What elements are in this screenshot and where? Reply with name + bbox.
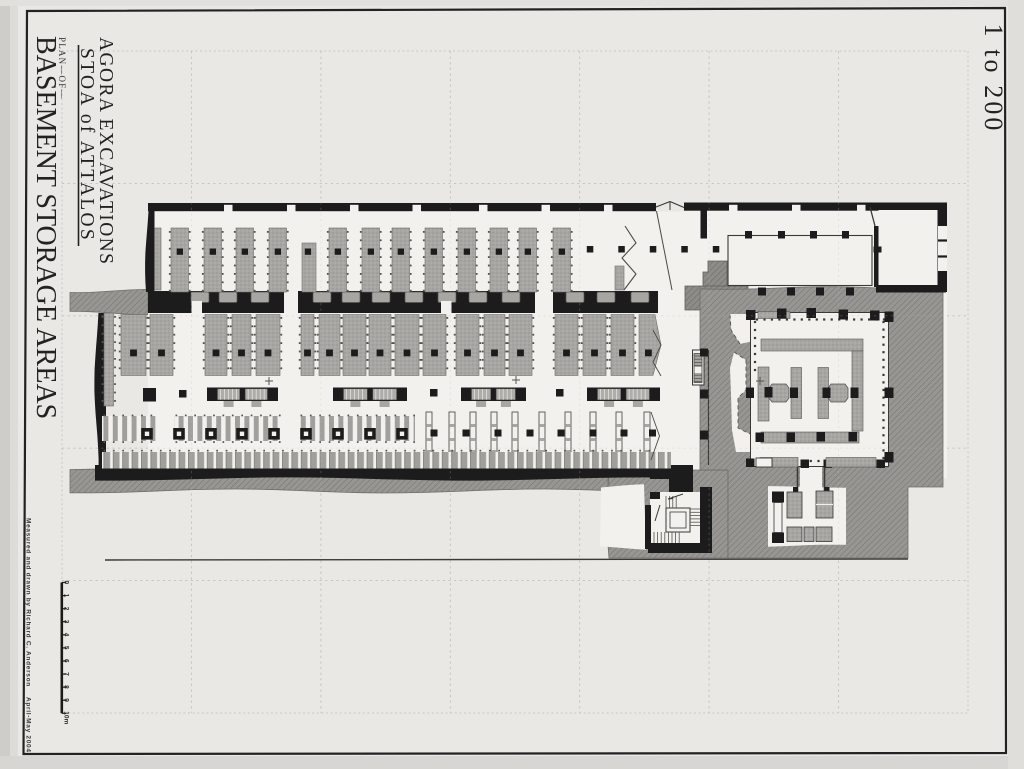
- svg-text:Measured and drawn by Richard: Measured and drawn by Richard C. Anderso…: [25, 518, 32, 753]
- svg-text:AGORA EXCAVATIONS: AGORA EXCAVATIONS: [95, 37, 116, 265]
- svg-text:6: 6: [63, 659, 70, 663]
- svg-text:4: 4: [63, 633, 70, 637]
- svg-text:5: 5: [63, 646, 70, 650]
- svg-text:9: 9: [63, 698, 70, 702]
- svg-text:10m: 10m: [63, 711, 70, 724]
- svg-text:1 to 200: 1 to 200: [979, 24, 1008, 134]
- svg-text:0: 0: [63, 581, 70, 585]
- svg-text:BASEMENT STORAGE AREAS: BASEMENT STORAGE AREAS: [30, 36, 61, 419]
- svg-text:1: 1: [63, 594, 70, 598]
- svg-text:7: 7: [63, 672, 70, 676]
- svg-text:3: 3: [63, 620, 70, 624]
- svg-text:2: 2: [63, 607, 70, 611]
- svg-text:8: 8: [63, 685, 70, 689]
